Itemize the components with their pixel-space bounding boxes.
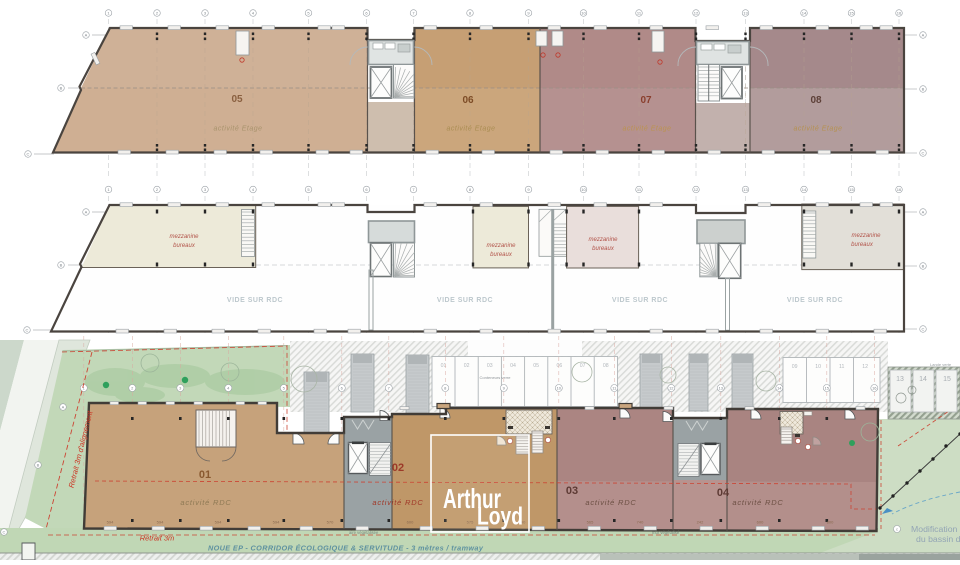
svg-text:VIDE SUR RDC: VIDE SUR RDC [437,297,493,304]
svg-text:VIDE SUR RDC: VIDE SUR RDC [227,297,283,304]
svg-text:02: 02 [464,363,470,369]
svg-text:activité Etage: activité Etage [622,126,671,133]
svg-text:594: 594 [107,520,114,525]
svg-text:12: 12 [862,364,868,370]
svg-text:aire végétalisée: aire végétalisée [349,530,379,535]
svg-text:12: 12 [694,10,699,15]
svg-text:Loyd: Loyd [477,503,523,531]
svg-text:activité Etage: activité Etage [446,126,495,133]
svg-text:01: 01 [441,363,447,369]
svg-text:600: 600 [757,520,764,525]
svg-text:C: C [922,150,925,155]
svg-text:Conteneurs verre: Conteneurs verre [480,375,512,380]
svg-text:13: 13 [719,385,724,390]
svg-text:c: c [896,527,898,531]
svg-text:800: 800 [827,520,834,525]
svg-text:16: 16 [897,10,902,15]
svg-text:A: A [922,209,925,214]
svg-text:activité Etage: activité Etage [213,126,262,133]
svg-text:07: 07 [580,363,586,369]
svg-text:activité RDC: activité RDC [732,498,783,507]
svg-text:02: 02 [392,462,404,474]
svg-text:03: 03 [566,485,578,497]
svg-text:activité RDC: activité RDC [372,498,423,507]
svg-text:16: 16 [897,187,902,192]
svg-text:12: 12 [694,187,699,192]
svg-text:594: 594 [157,520,164,525]
svg-text:C: C [27,151,30,156]
svg-text:du bassin d: du bassin d [916,534,960,544]
svg-text:Lande verte: Lande verte [930,362,952,367]
svg-text:Modification: Modification [911,524,958,534]
svg-text:VIDE SUR RDC: VIDE SUR RDC [787,297,843,304]
svg-text:A: A [85,32,88,37]
svg-text:09: 09 [792,364,798,370]
svg-text:mezzanine: mezzanine [851,233,881,239]
svg-text:VIDE SUR RDC: VIDE SUR RDC [612,297,668,304]
svg-text:10: 10 [815,364,821,370]
svg-text:activité RDC: activité RDC [585,498,636,507]
svg-text:A: A [85,209,88,214]
svg-text:01: 01 [199,469,211,481]
svg-text:bureaux: bureaux [173,243,196,249]
svg-text:10: 10 [557,385,562,390]
svg-text:08: 08 [810,95,822,106]
svg-text:05: 05 [231,94,243,105]
svg-text:C: C [3,529,6,534]
svg-text:B: B [60,85,63,90]
svg-text:13: 13 [743,187,748,192]
svg-text:06: 06 [462,95,474,106]
svg-text:mezzanine: mezzanine [169,234,199,240]
svg-text:11: 11 [839,364,844,370]
svg-text:bureaux: bureaux [592,246,615,252]
svg-text:565: 565 [587,520,594,525]
svg-text:mezzanine: mezzanine [486,243,516,249]
svg-text:12: 12 [669,385,674,390]
svg-text:bureaux: bureaux [851,242,874,248]
svg-text:A: A [922,32,925,37]
svg-text:594: 594 [215,520,222,525]
svg-text:05: 05 [533,363,539,369]
svg-text:570: 570 [327,520,334,525]
svg-text:13: 13 [743,10,748,15]
svg-text:15: 15 [849,10,854,15]
svg-text:04: 04 [717,487,730,499]
svg-text:bureaux: bureaux [490,252,513,258]
svg-text:15: 15 [943,376,951,383]
svg-text:15: 15 [849,187,854,192]
svg-text:08: 08 [603,363,609,369]
svg-text:03: 03 [487,363,493,369]
svg-text:B: B [60,262,63,267]
svg-text:740: 740 [637,520,644,525]
svg-text:10: 10 [581,187,586,192]
svg-text:15: 15 [825,385,830,390]
svg-text:06: 06 [557,363,563,369]
svg-text:mezzanine: mezzanine [588,237,618,243]
svg-text:A: A [62,404,65,409]
svg-text:10: 10 [581,10,586,15]
svg-text:14: 14 [802,10,807,15]
svg-text:C: C [26,327,29,332]
svg-text:07: 07 [640,95,652,106]
svg-text:04: 04 [510,363,516,369]
svg-text:B: B [37,462,40,467]
svg-text:594: 594 [273,520,280,525]
svg-text:Retrait 3m: Retrait 3m [140,534,175,543]
svg-text:16: 16 [872,385,877,390]
svg-text:14: 14 [802,187,807,192]
svg-text:activité Etage: activité Etage [793,126,842,133]
svg-text:14: 14 [919,376,927,383]
svg-text:C: C [922,326,925,331]
svg-text:13: 13 [896,376,904,383]
svg-text:242: 242 [697,520,704,525]
svg-text:NOUE EP - CORRIDOR ÉCOLOGIQUE: NOUE EP - CORRIDOR ÉCOLOGIQUE & SERVITUD… [208,544,484,553]
svg-text:B: B [922,263,925,268]
svg-text:B: B [922,86,925,91]
svg-text:600: 600 [407,520,414,525]
svg-text:mur végétalisé: mur végétalisé [652,530,680,535]
svg-text:14: 14 [777,385,782,390]
svg-text:activité RDC: activité RDC [180,498,231,507]
